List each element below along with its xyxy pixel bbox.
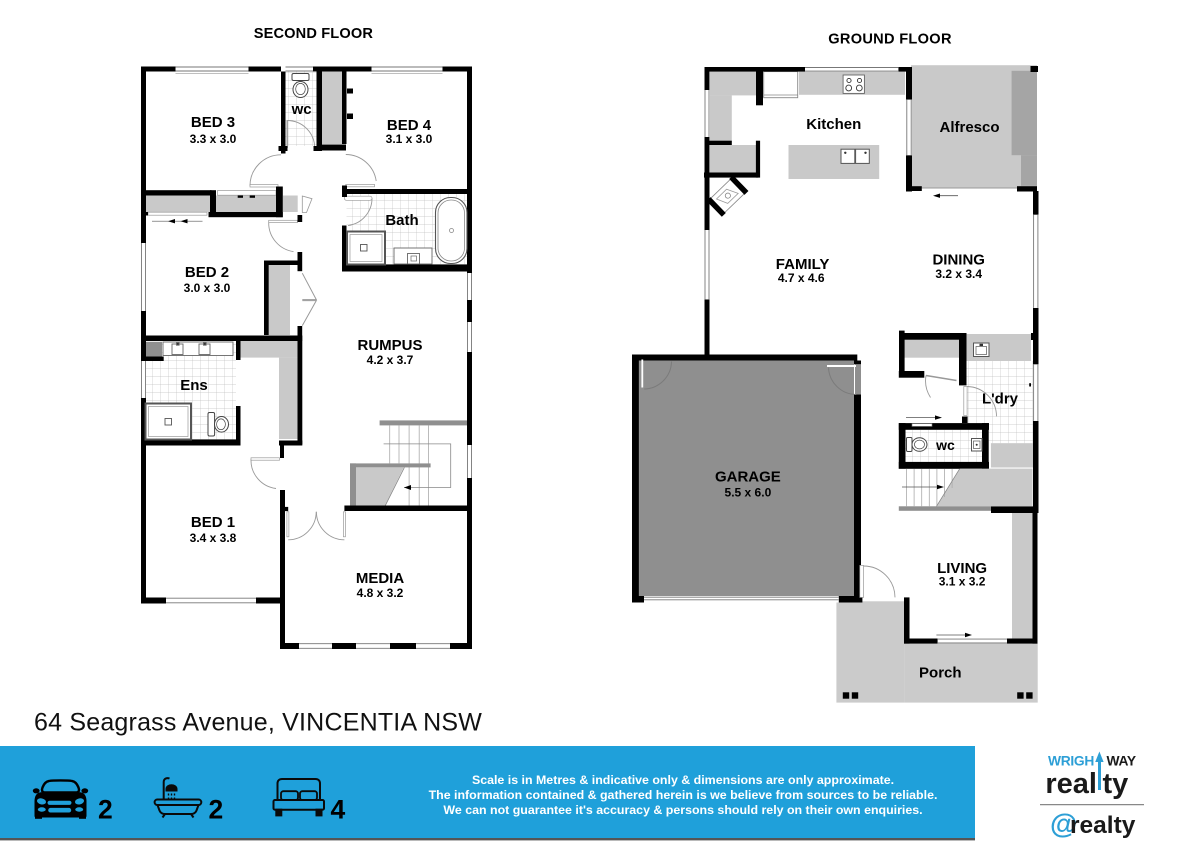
svg-text:BED 1: BED 1: [191, 514, 235, 531]
svg-text:Ens: Ens: [180, 377, 208, 394]
svg-text:4: 4: [331, 795, 346, 825]
svg-text:wc: wc: [935, 437, 955, 453]
svg-text:Porch: Porch: [919, 664, 962, 681]
svg-text:3.1 x 3.2: 3.1 x 3.2: [939, 574, 986, 588]
svg-text:3.0 x 3.0: 3.0 x 3.0: [184, 281, 231, 295]
svg-text:Kitchen: Kitchen: [806, 116, 861, 133]
svg-text:3.1 x 3.0: 3.1 x 3.0: [386, 132, 433, 146]
svg-text:BED 2: BED 2: [185, 264, 229, 281]
svg-text:real: real: [1045, 768, 1097, 800]
svg-text:wc: wc: [291, 101, 312, 118]
svg-text:2: 2: [98, 795, 113, 825]
svg-text:GARAGE: GARAGE: [715, 469, 781, 486]
svg-text:Bath: Bath: [385, 212, 418, 229]
svg-text:64 Seagrass Avenue, VINCENTIA: 64 Seagrass Avenue, VINCENTIA NSW: [34, 709, 482, 737]
svg-text:RUMPUS: RUMPUS: [357, 337, 422, 354]
svg-text:5.5 x 6.0: 5.5 x 6.0: [725, 486, 772, 500]
svg-text:WAY: WAY: [1107, 754, 1136, 769]
svg-text:The information contained & ga: The information contained & gathered her…: [429, 788, 938, 802]
svg-text:We can not guarantee it's accu: We can not guarantee it's accuracy & per…: [443, 803, 922, 817]
svg-text:realty: realty: [1070, 812, 1136, 839]
svg-text:4.8 x 3.2: 4.8 x 3.2: [357, 586, 404, 600]
svg-text:GROUND FLOOR: GROUND FLOOR: [828, 32, 952, 48]
svg-text:2: 2: [209, 795, 224, 825]
svg-text:3.3 x 3.0: 3.3 x 3.0: [190, 132, 237, 146]
svg-text:4.2 x 3.7: 4.2 x 3.7: [367, 353, 414, 367]
svg-text:Alfresco: Alfresco: [939, 119, 999, 136]
svg-text:L'dry: L'dry: [982, 391, 1019, 408]
svg-text:3.4 x 3.8: 3.4 x 3.8: [190, 531, 237, 545]
svg-text:4.7 x 4.6: 4.7 x 4.6: [778, 271, 825, 285]
svg-text:WRIGH: WRIGH: [1048, 754, 1094, 769]
svg-text:3.2 x 3.4: 3.2 x 3.4: [935, 267, 982, 281]
svg-text:SECOND FLOOR: SECOND FLOOR: [254, 26, 374, 42]
svg-text:BED 3: BED 3: [191, 114, 235, 131]
svg-text:MEDIA: MEDIA: [356, 570, 405, 587]
svg-text:Scale is in Metres & indicativ: Scale is in Metres & indicative only & d…: [472, 773, 894, 787]
svg-text:ty: ty: [1103, 768, 1129, 800]
